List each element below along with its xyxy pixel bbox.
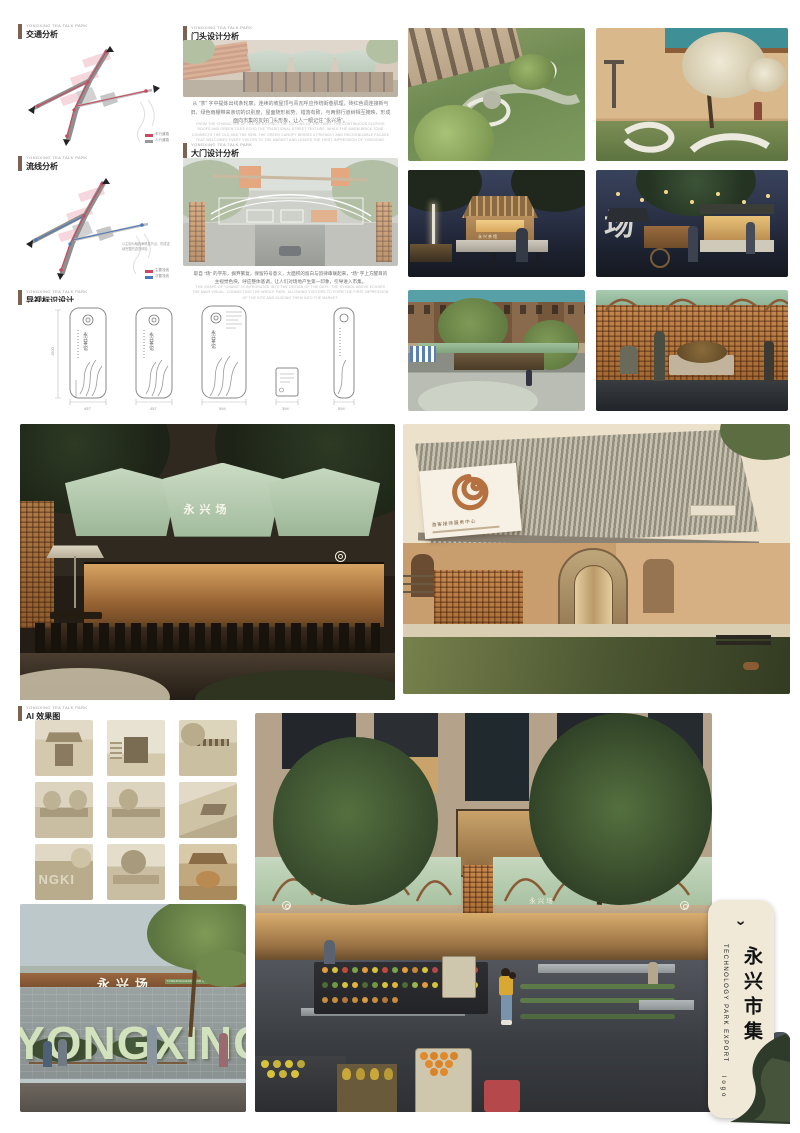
dark-stage-base xyxy=(596,380,788,411)
light-plaza-curve xyxy=(418,381,538,411)
stall-flat-canopy xyxy=(700,204,774,214)
thumb-tree xyxy=(71,848,91,867)
legend-swatch-red xyxy=(145,134,153,137)
storefront-body-en: FROM THE CHARACTER OF TEA WE EXTRACT THE… xyxy=(190,122,391,144)
thumb-tree xyxy=(181,723,204,745)
tree-foliage xyxy=(509,54,555,90)
side-window xyxy=(643,559,674,613)
dog-shape xyxy=(743,662,759,670)
sign-elevation-graphic: 1500 永兴茶馆 457 永兴茶馆 xyxy=(28,302,394,416)
thumb-tree xyxy=(121,850,147,875)
section-header-traffic: YONGXING TEA TALK PARK 交通分析 xyxy=(18,24,87,39)
chevron-right-icon: › xyxy=(732,920,750,925)
brand-label: YONGXING TEA TALK PARK xyxy=(26,24,87,29)
ai-thumbnail xyxy=(35,720,93,776)
person-figure xyxy=(688,226,698,262)
sign-board-text: 游客接待服务中心 xyxy=(432,519,477,529)
thumb-shutter xyxy=(110,742,122,759)
brick-lattice-edge xyxy=(20,501,54,628)
legend-swatch-red xyxy=(145,270,153,273)
legend-label: 次要流线 xyxy=(155,274,169,280)
light-column xyxy=(432,204,435,246)
circulation-legend: 主要流线 次要流线 xyxy=(145,268,169,280)
spiral-logo-icon xyxy=(680,901,689,910)
thumb-door xyxy=(124,737,147,763)
section-title-gate: 大门设计分析 xyxy=(191,149,252,159)
bench-rail xyxy=(29,1062,187,1064)
sign-height-dim: 1500 xyxy=(50,346,55,356)
fruit-row xyxy=(322,982,328,988)
kiosk-roof xyxy=(462,196,538,218)
header-accent-bar xyxy=(183,143,187,158)
section-title-traffic: 交通分析 xyxy=(26,30,87,40)
thumb-letters: NGKI xyxy=(38,872,89,888)
legend-label: 人行道路 xyxy=(155,138,169,144)
ai-thumbnail xyxy=(179,782,237,838)
sign-width-dim: 594 xyxy=(338,406,345,411)
yellow-top xyxy=(499,976,513,996)
standing-person xyxy=(219,1033,228,1067)
thumb-awning xyxy=(45,732,82,742)
brand-label: YONGXING TEA TALK PARK xyxy=(26,156,87,161)
presentation-board: YONGXING TEA TALK PARK 交通分析 车行道路 人行道路 xyxy=(0,0,800,1133)
thumb-door xyxy=(55,744,74,766)
roof-label-plate xyxy=(690,505,736,516)
seated-person xyxy=(648,962,658,984)
mother-child-figures xyxy=(499,968,514,1026)
cart-canopy xyxy=(606,208,650,222)
seated-people xyxy=(620,346,638,374)
sign-width-dim: 594 xyxy=(219,406,226,411)
tree-canopy xyxy=(529,713,712,905)
sign-width-dim: 457 xyxy=(150,406,157,411)
circulation-analysis-diagram: 以主街为轴线串联各节点，形成连续完整的游览体验 主要流线 次要流线 xyxy=(20,174,172,284)
thumb-street-cart xyxy=(200,804,227,815)
roof-rail-curves xyxy=(596,290,788,312)
orange-pile xyxy=(420,1052,428,1060)
stall-counter xyxy=(700,240,774,252)
hero-visitor-center: 游客接待服务中心 xyxy=(403,424,790,694)
awning-sign-text: 永兴场 xyxy=(170,501,245,517)
ground xyxy=(20,1083,246,1112)
spiral-logo-icon xyxy=(441,467,501,518)
faded-overlay xyxy=(183,158,398,266)
hero-night-storefront: 永兴场 xyxy=(20,424,395,700)
window xyxy=(465,713,529,801)
ai-thumbnail xyxy=(107,844,165,900)
ai-thumbnail: NGKI xyxy=(35,844,93,900)
gate-body-cn: 取自 “场” 的字形，摒弃繁复，保留符号意义，大面积的留白与韵律串联起来，“场”… xyxy=(192,270,389,286)
stool xyxy=(492,252,496,266)
white-flower-canopy xyxy=(746,58,786,92)
brand-label: YONGXING TEA TALK PARK xyxy=(26,290,87,295)
sign-label-text: 永兴茶馆 xyxy=(211,329,217,350)
signage-drawings: 1500 永兴茶馆 457 永兴茶馆 xyxy=(28,302,394,416)
faded-overlay xyxy=(183,40,398,97)
fruit-row xyxy=(322,967,328,973)
bench xyxy=(716,635,770,639)
planter-shrub xyxy=(677,341,727,363)
person-figure xyxy=(654,331,665,381)
wood-cart-body xyxy=(644,226,690,248)
traffic-analysis-diagram: 车行道路 人行道路 xyxy=(20,44,172,148)
striped-stall xyxy=(410,346,436,362)
tree-canopy xyxy=(196,950,246,987)
tree-canopy xyxy=(273,737,438,905)
gate-analysis-image xyxy=(183,158,398,266)
ai-thumbnail xyxy=(107,782,165,838)
market-logo-card: › TECHNOLOGY PARK EXPORT 永兴市集 logo xyxy=(708,900,774,1118)
lawn xyxy=(403,637,790,694)
stone-bench xyxy=(639,1000,694,1010)
thumb-tree xyxy=(69,790,88,810)
render-lattice-wall xyxy=(596,290,788,411)
seated-person xyxy=(58,1039,67,1066)
section-header-circulation: YONGXING TEA TALK PARK 流线分析 xyxy=(18,156,87,171)
section-header-gate: YONGXING TEA TALK PARK 大门设计分析 xyxy=(183,143,252,158)
thumb-tree xyxy=(119,789,139,810)
legend-swatch-gray xyxy=(145,140,153,143)
person-figure xyxy=(516,228,528,262)
section-title-circulation: 流线分析 xyxy=(26,162,87,172)
thumb-tree xyxy=(43,791,60,810)
low-stall xyxy=(255,1056,346,1112)
sign-label-text: 永兴茶馆 xyxy=(83,331,89,352)
pineapples xyxy=(342,1068,351,1080)
green-awning-strip xyxy=(418,343,578,353)
legend-swatch-blue xyxy=(145,276,153,279)
traffic-legend: 车行道路 人行道路 xyxy=(145,132,169,144)
spiral-logo-icon xyxy=(335,551,346,562)
sign-width-dim: 394 xyxy=(282,406,289,411)
glowing-storefront xyxy=(84,562,384,627)
sign-label-text: 永兴茶馆 xyxy=(149,331,155,352)
shoes xyxy=(501,1020,512,1025)
string-lights xyxy=(616,192,620,196)
market-awning-text: 永兴场 xyxy=(529,895,555,905)
orange-basket xyxy=(415,1048,472,1112)
leaf-blob-graphic xyxy=(720,1028,790,1124)
turf-strips xyxy=(520,984,675,989)
standing-person xyxy=(147,1025,157,1065)
ai-thumbnail xyxy=(179,844,237,900)
seated-person xyxy=(43,1041,52,1067)
brand-label: YONGXING TEA TALK PARK xyxy=(26,706,87,711)
pineapple-crate xyxy=(337,1064,396,1112)
stall-glow xyxy=(704,216,770,242)
cafe-furniture-row xyxy=(35,623,380,653)
wood-table xyxy=(410,244,452,262)
header-accent-bar xyxy=(18,290,22,305)
render-market-cart-night: 场 xyxy=(596,170,788,277)
sign-width-dim: 457 xyxy=(84,406,91,411)
cart-wheel xyxy=(650,248,670,268)
spiral-sign-board: 游客接待服务中心 xyxy=(420,463,522,539)
person-figure xyxy=(746,222,755,254)
render-flower-tree-court xyxy=(596,28,788,161)
stool xyxy=(536,252,540,266)
dining-table xyxy=(50,612,102,619)
storefront-analysis-image xyxy=(183,40,398,97)
red-fruit-crate xyxy=(484,1080,521,1112)
fence-rails xyxy=(403,575,434,577)
brand-label: YONGXING TEA TALK PARK xyxy=(191,26,252,31)
person-figure xyxy=(754,102,762,120)
wall-3d-letters: YONGXING xyxy=(20,1016,246,1083)
stall-row xyxy=(454,353,544,370)
umbrella-pole xyxy=(74,556,76,608)
brand-label: YONGXING TEA TALK PARK xyxy=(191,143,252,148)
render-yongxing-wall: 永兴场 YONGXINGCHANG AND CULTURE YONGXING xyxy=(20,904,246,1112)
spiral-logo-icon xyxy=(282,901,291,910)
jeans xyxy=(501,995,512,1021)
woven-basket xyxy=(442,956,476,998)
gate-body-en: THE SHAPE OF “CHANG” IS INTEGRATED INTO … xyxy=(192,285,389,301)
render-market-plaza: 永兴场 xyxy=(255,713,712,1112)
ai-thumbnail xyxy=(35,782,93,838)
render-garden-aerial xyxy=(408,28,585,161)
kiosk-counter xyxy=(456,240,548,252)
thumb-cart xyxy=(196,871,219,888)
header-accent-bar xyxy=(18,24,22,39)
render-street-day xyxy=(408,290,585,411)
thumb-gate-roof xyxy=(188,853,227,864)
header-accent-bar xyxy=(18,156,22,171)
ai-thumbnail xyxy=(107,720,165,776)
person-figure xyxy=(526,370,532,386)
thumb-wall xyxy=(113,875,159,884)
fruit-row xyxy=(322,997,328,1003)
thumb-planter-row xyxy=(112,809,161,817)
circulation-note: 以主街为轴线串联各节点，形成连续完整的游览体验 xyxy=(122,242,170,252)
person-figure xyxy=(764,341,774,381)
melon-pile xyxy=(261,1060,269,1068)
ai-thumbnail xyxy=(179,720,237,776)
render-tea-kiosk-night: 永兴茶馆 xyxy=(408,170,585,277)
vendor-figure xyxy=(324,940,335,964)
header-accent-bar xyxy=(18,706,22,721)
